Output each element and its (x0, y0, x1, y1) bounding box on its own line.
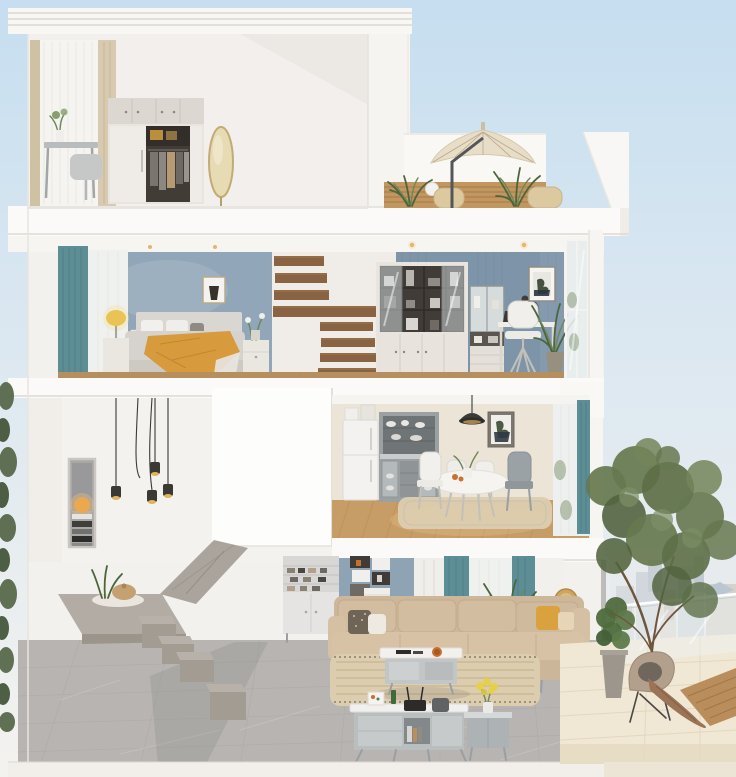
cutaway-house-render (0, 0, 736, 777)
study (376, 252, 578, 380)
ceiling-strip (8, 236, 604, 252)
vanity-desk (44, 142, 98, 148)
floor-slab-top (8, 206, 412, 236)
flower-vase (251, 330, 260, 340)
storage-boxes (345, 408, 358, 420)
vanity-chair (70, 154, 102, 180)
wicker-stool-left (434, 188, 464, 208)
wardrobe-door-right (190, 126, 202, 202)
kitchen-teal-curtain (577, 400, 590, 534)
scene-canvas (0, 0, 736, 777)
bed (125, 312, 245, 375)
yellow-table-lamp (106, 310, 126, 326)
drape-left (30, 40, 40, 206)
bookcase-display (376, 262, 468, 380)
vase (56, 130, 64, 142)
chair-cushion (638, 662, 662, 682)
wood-treads-upper (274, 256, 329, 300)
pendant-head (150, 462, 160, 476)
wicker-stool-right (528, 187, 562, 208)
fridge (343, 405, 378, 500)
pendant-head (111, 486, 121, 500)
flower-leaves (52, 111, 60, 119)
dining-kitchen (332, 395, 590, 545)
sunset-art (69, 459, 95, 547)
area-rug (398, 497, 552, 529)
dressing-window (30, 40, 116, 206)
nightstand-left (103, 305, 129, 374)
study-wall-art (529, 267, 555, 301)
table-vase (463, 468, 472, 478)
second-floor (8, 236, 604, 382)
bedroom-wall-art (203, 277, 225, 303)
desk-chair-back (508, 301, 538, 328)
photo-frame (368, 692, 384, 705)
hutch-glass-door (382, 461, 398, 497)
glass-partition (566, 240, 588, 382)
remote (396, 650, 411, 654)
bouquet-vase (483, 702, 493, 713)
roof-cornice (8, 8, 412, 34)
mustard-pillow (536, 606, 560, 630)
bottom-slab-edge (8, 762, 604, 777)
pendant-head (163, 484, 173, 498)
wardrobe-door-left (110, 126, 146, 202)
wardrobe-open-closet (108, 98, 204, 204)
kitchen-wall-art (488, 412, 514, 447)
wardrobe-open-section (146, 126, 190, 202)
green-bottle (391, 690, 396, 704)
wood-beam (273, 306, 381, 317)
ground-floor (8, 540, 606, 777)
fruit-bowl (452, 474, 458, 480)
router (404, 700, 426, 711)
master-bedroom (58, 246, 272, 378)
wall-box-shelves (350, 556, 390, 602)
storage-box-gold (150, 130, 163, 140)
kitchen-window (553, 400, 590, 536)
hanging-clothes (150, 152, 158, 186)
glass-cabinet (470, 286, 504, 378)
top-floor-dressing-room (8, 8, 412, 236)
speaker (432, 698, 449, 712)
stair-enclosure-block (212, 388, 332, 546)
pendant-head (147, 490, 157, 504)
